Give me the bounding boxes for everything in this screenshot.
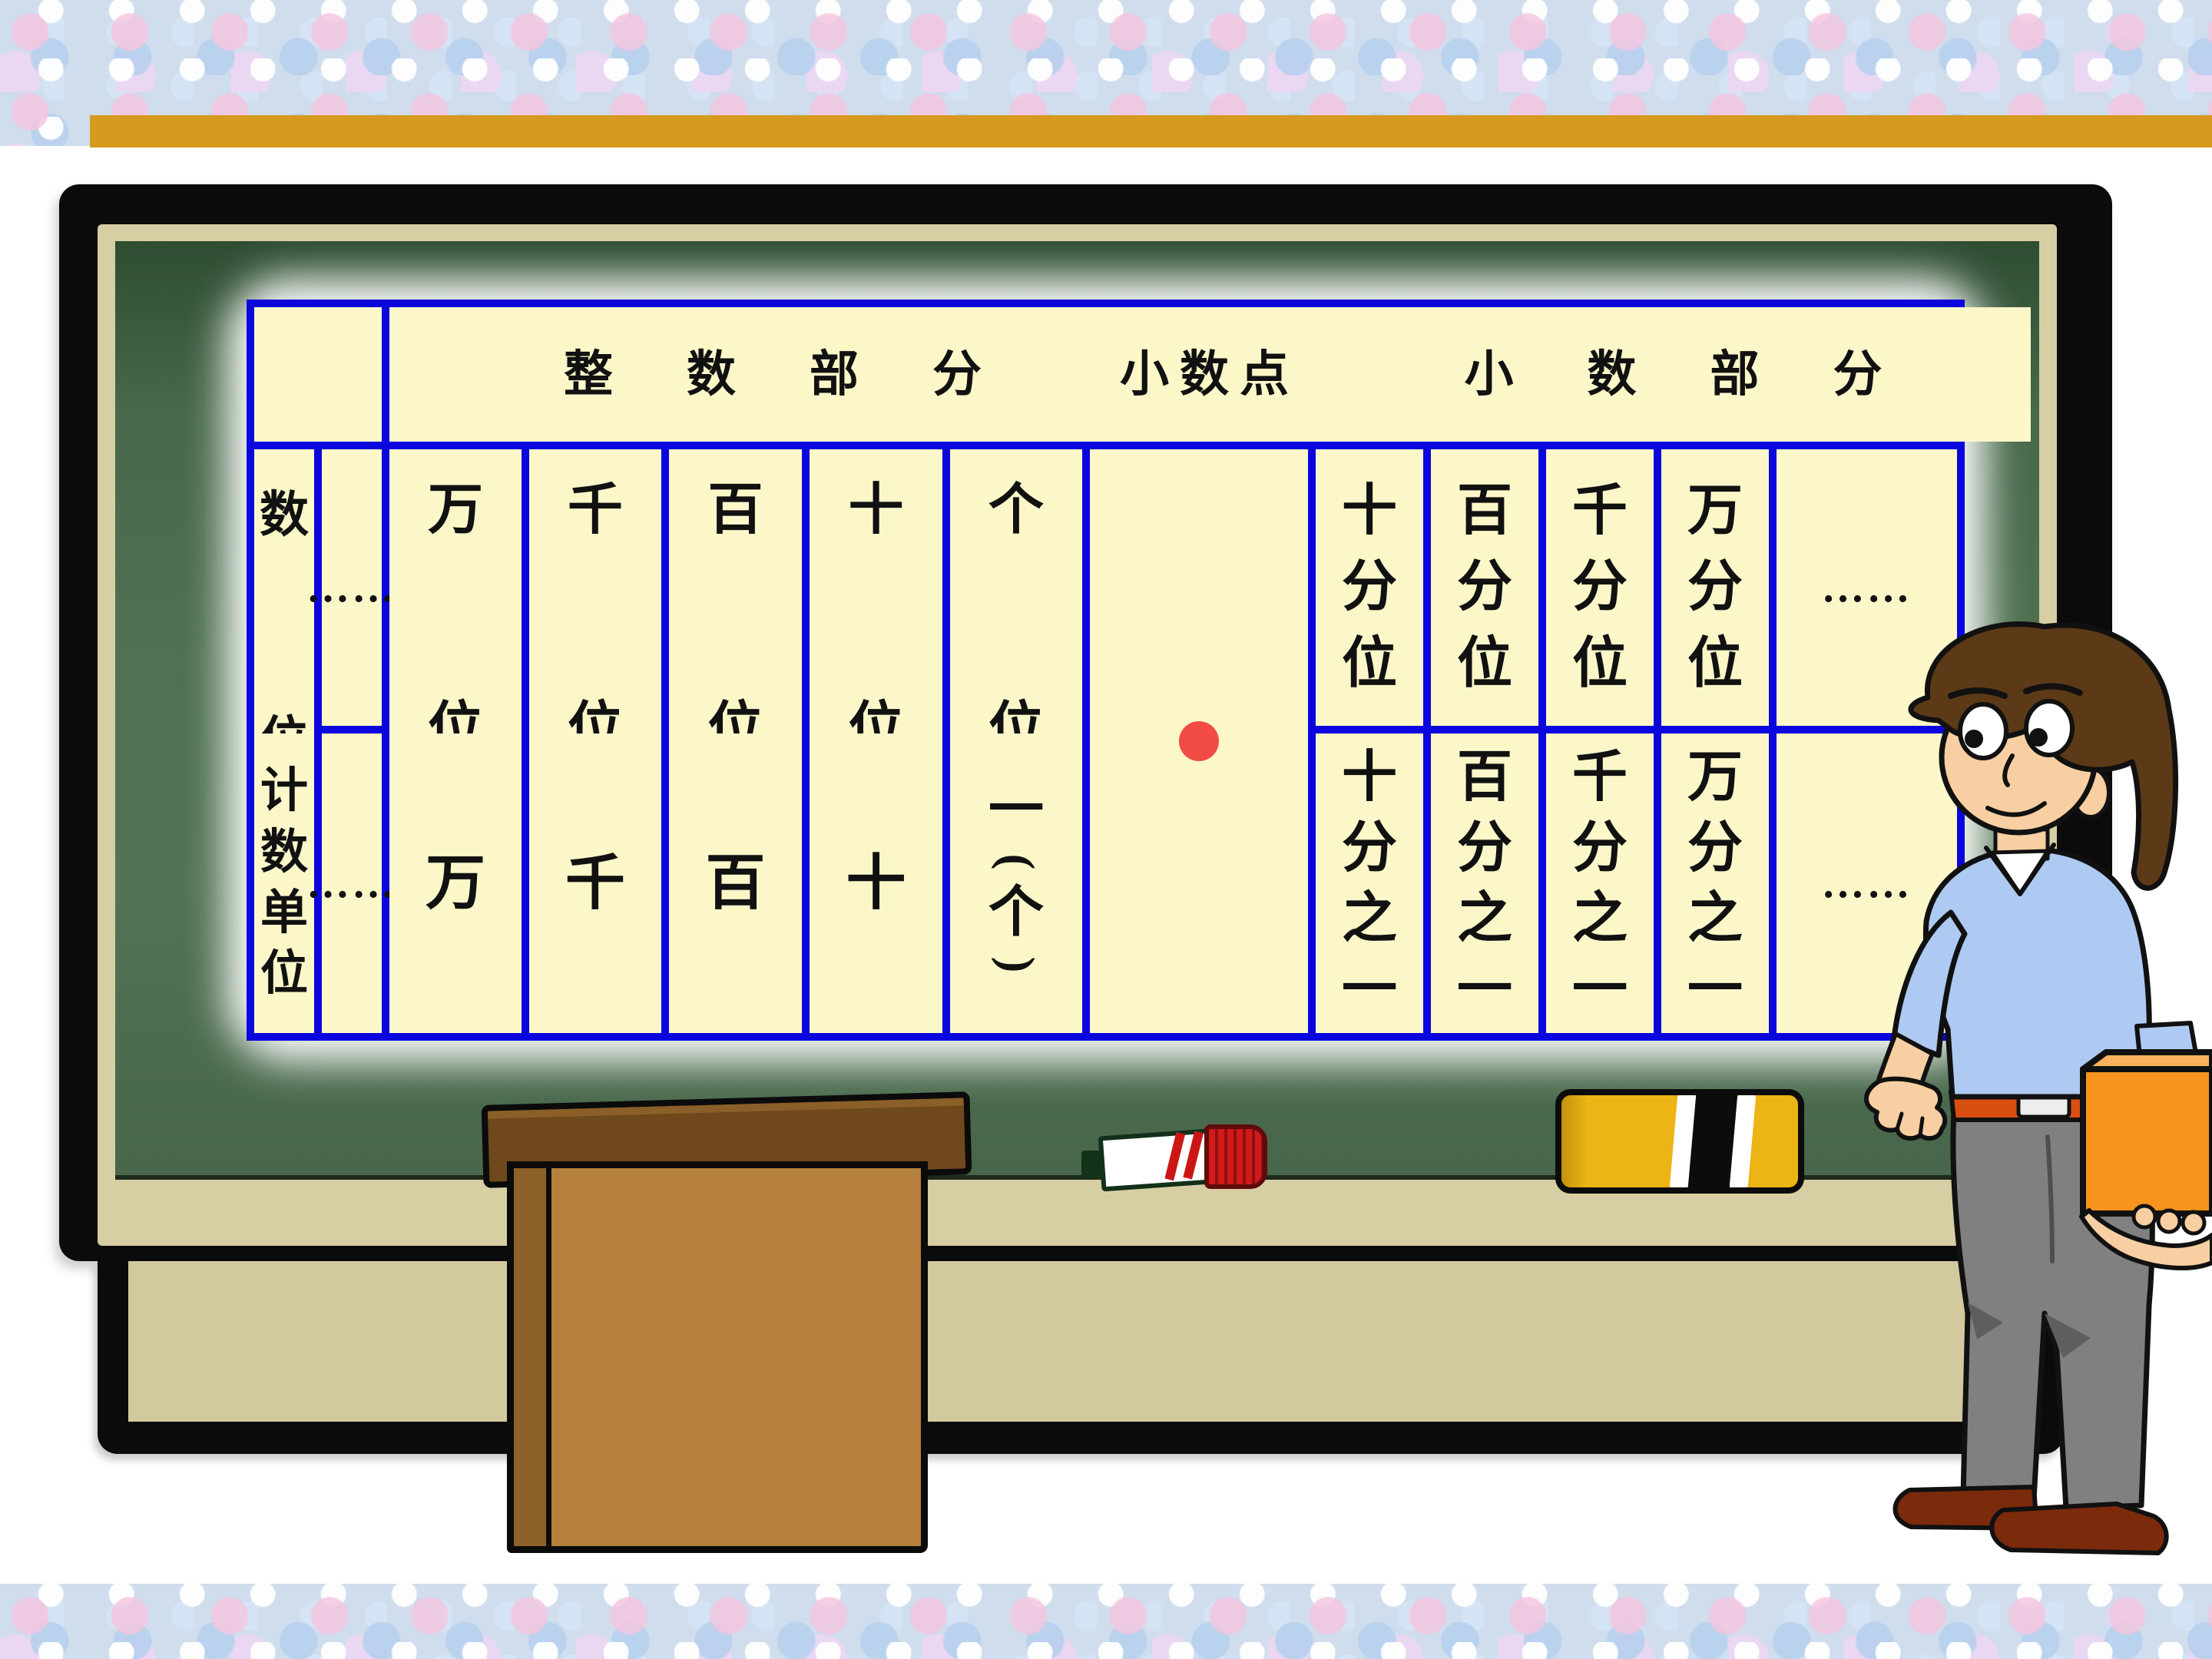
cell-char: 分 [1687, 813, 1743, 883]
teacher-book [2083, 1052, 2212, 1214]
cell-char: 位 [260, 944, 308, 1005]
cell-char: 万 [426, 852, 485, 915]
header-corner [254, 307, 382, 442]
place-value-table: 整数部分小数点小数部分数位……万位千位百位十位个位十分位百分位千分位万分位……计… [247, 300, 1965, 1041]
cell-unit-hundred: 百 [669, 733, 802, 1033]
podium-body [507, 1161, 928, 1553]
cell-char: 之 [1342, 883, 1397, 954]
header-decimal-point: 小数点 [1090, 307, 1319, 442]
cell-char: 万 [1687, 473, 1743, 549]
cell-char: 十 [846, 852, 906, 915]
cell-char: 位 [1572, 626, 1628, 702]
marker-cap [1204, 1124, 1267, 1189]
cell-char: 计 [260, 761, 308, 822]
board-shelf [98, 1261, 2064, 1454]
cell-char: 十 [1342, 742, 1397, 813]
cell-unit-one: 一(个) [950, 733, 1082, 1033]
cell-char: 百 [705, 852, 765, 915]
cell-char: 百 [1457, 473, 1512, 549]
cell-thousandths-place: 千分位 [1546, 449, 1654, 726]
cell-hundredths-place: 百分位 [1431, 449, 1538, 726]
accent-bar [90, 115, 2212, 147]
cell-unit-one-ten-thousandth: 万分之一 [1661, 733, 1769, 1033]
teacher-eye-left [1960, 704, 2006, 758]
cell-char: 之 [1457, 883, 1512, 954]
teacher-cartoon [1836, 599, 2212, 1582]
board-eraser [1555, 1089, 1804, 1194]
cell-char: 数 [260, 823, 308, 883]
board-shelf-face [128, 1261, 2028, 1422]
cell-char: 分 [1687, 549, 1743, 625]
teacher-eye-right [2026, 701, 2072, 755]
cell-char: 千 [1572, 742, 1628, 813]
cell-char: 位 [1342, 626, 1397, 702]
eraser-shading [1561, 1095, 1588, 1187]
header-integer-part: 整数部分 [389, 307, 1156, 442]
cell-unit-thousand: 千 [529, 733, 661, 1033]
cell-char: 之 [1572, 883, 1628, 954]
pattern-strip-bottom [0, 1584, 2212, 1659]
cell-char: 个 [988, 482, 1044, 540]
teacher-pupil-right [2029, 728, 2048, 747]
cell-char: 一 [988, 780, 1044, 840]
cell-char: 分 [1572, 549, 1628, 625]
cell-tenths-place: 十分位 [1316, 449, 1423, 726]
cell-unit-one-tenth: 十分之一 [1316, 733, 1423, 1033]
pattern-corner-top-left [0, 0, 90, 146]
cell-unit-one-thousandth: 千分之一 [1546, 733, 1654, 1033]
teacher-pupil-left [1965, 730, 1983, 748]
marker-stripe [1183, 1131, 1204, 1179]
cell-ellipsis: …… [322, 733, 382, 1033]
cell-char: 一 [1342, 954, 1397, 1025]
cell-char: 个 [988, 883, 1044, 943]
slide: { "slide": { "accent_bar_color": "#d7991… [0, 0, 2212, 1659]
cell-char: 位 [1687, 626, 1743, 702]
cell-char: 分 [1342, 549, 1397, 625]
cell-char: 万 [1687, 742, 1743, 813]
cell-char: 千 [565, 852, 625, 915]
marker [1081, 1121, 1258, 1183]
cell-char: 数 [260, 489, 309, 541]
cell-char: 百 [707, 482, 763, 540]
cell-char: 百 [1457, 742, 1512, 813]
cell-char: ) [995, 956, 1038, 972]
row-label-counting-units: 计数单位 [254, 733, 314, 1033]
teacher-head [1911, 624, 2176, 894]
decimal-point-dot [1179, 721, 1219, 761]
cell-char: 位 [1457, 626, 1512, 702]
cell-char: 十 [848, 482, 903, 540]
cell-unit-ten: 十 [810, 733, 942, 1033]
cell-char: 万 [428, 482, 483, 540]
cell-char: ( [995, 854, 1038, 870]
cell-char: 千 [568, 482, 623, 540]
cell-unit-ten-thousand: 万 [389, 733, 522, 1033]
decimal-point-cell [1090, 449, 1308, 1033]
cell-char: 分 [1342, 813, 1397, 883]
cell-char: 一 [1572, 954, 1628, 1025]
header-decimal-part: 小数部分 [1316, 307, 2031, 442]
teacher-left-hand [1866, 1079, 1945, 1139]
podium-side [514, 1168, 551, 1546]
cell-char: 分 [1572, 813, 1628, 883]
pattern-strip-top [0, 0, 2212, 115]
cell-char: 一 [1457, 954, 1512, 1025]
cell-ten-thousandths-place: 万分位 [1661, 449, 1769, 726]
cell-char: 之 [1687, 883, 1743, 954]
cell-ellipsis: …… [322, 449, 382, 726]
cell-unit-one-hundredth: 百分之一 [1431, 733, 1538, 1033]
cell-char: 十 [1342, 473, 1397, 549]
cell-char: 单 [260, 883, 308, 944]
cell-char: 分 [1457, 813, 1512, 883]
marker-stripe [1164, 1132, 1185, 1181]
cell-char: 分 [1457, 549, 1512, 625]
cell-char: 一 [1687, 954, 1743, 1025]
cell-char: 千 [1572, 473, 1628, 549]
